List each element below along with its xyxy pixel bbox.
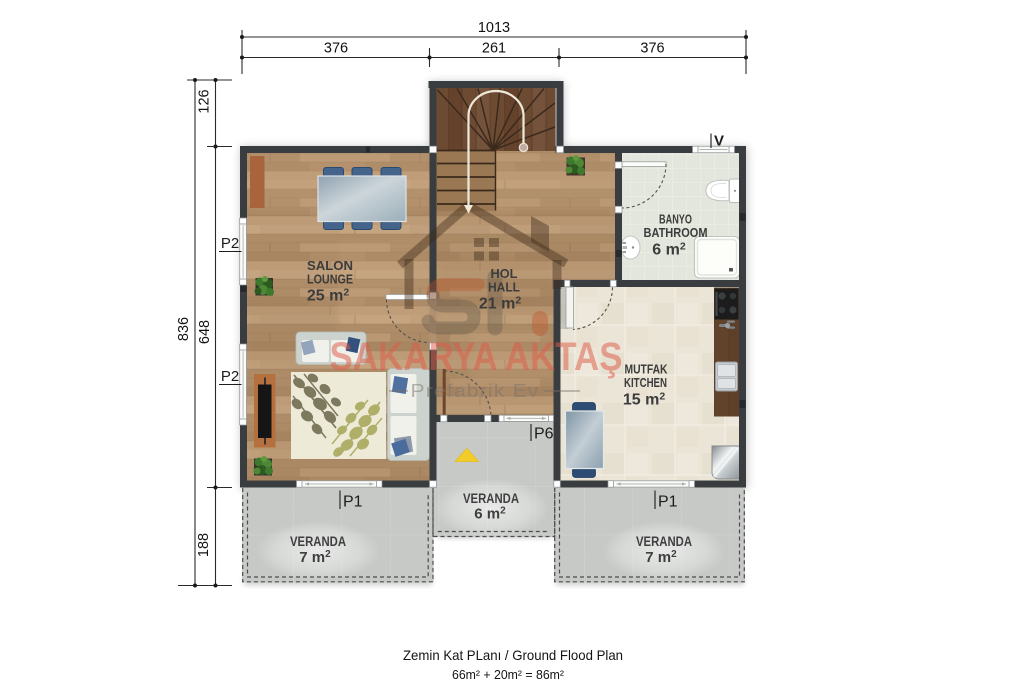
svg-text:KITCHEN: KITCHEN [624, 375, 667, 390]
svg-text:LOUNGE: LOUNGE [307, 272, 353, 287]
svg-text:376: 376 [324, 41, 348, 57]
svg-text:V: V [714, 133, 724, 150]
svg-text:836: 836 [176, 317, 192, 341]
svg-text:P2: P2 [221, 368, 239, 385]
svg-text:126: 126 [197, 89, 213, 113]
svg-text:VERANDA: VERANDA [463, 491, 519, 506]
svg-text:P2: P2 [221, 235, 239, 252]
svg-text:15 m2: 15 m2 [623, 391, 665, 409]
svg-text:P1: P1 [343, 494, 363, 511]
svg-text:25 m2: 25 m2 [307, 287, 349, 305]
svg-text:376: 376 [640, 41, 664, 57]
svg-text:VERANDA: VERANDA [290, 534, 346, 549]
svg-text:BATHROOM: BATHROOM [644, 225, 708, 240]
svg-text:P6: P6 [534, 426, 554, 443]
svg-text:261: 261 [482, 41, 506, 57]
svg-text:HALL: HALL [488, 280, 520, 295]
svg-text:SAKARYA AKTAŞ: SAKARYA AKTAŞ [330, 335, 623, 379]
svg-text:Zemin Kat PLanı / Ground Flood: Zemin Kat PLanı / Ground Flood Plan [403, 647, 623, 663]
svg-text:648: 648 [197, 320, 213, 344]
svg-text:21 m2: 21 m2 [479, 295, 521, 313]
svg-text:P1: P1 [658, 494, 678, 511]
svg-text:VERANDA: VERANDA [636, 534, 692, 549]
svg-text:1013: 1013 [478, 20, 510, 36]
svg-text:188: 188 [196, 533, 212, 557]
svg-text:Prefabrik Ev: Prefabrik Ev [411, 380, 540, 401]
svg-text:66m² + 20m² = 86m²: 66m² + 20m² = 86m² [452, 667, 565, 682]
